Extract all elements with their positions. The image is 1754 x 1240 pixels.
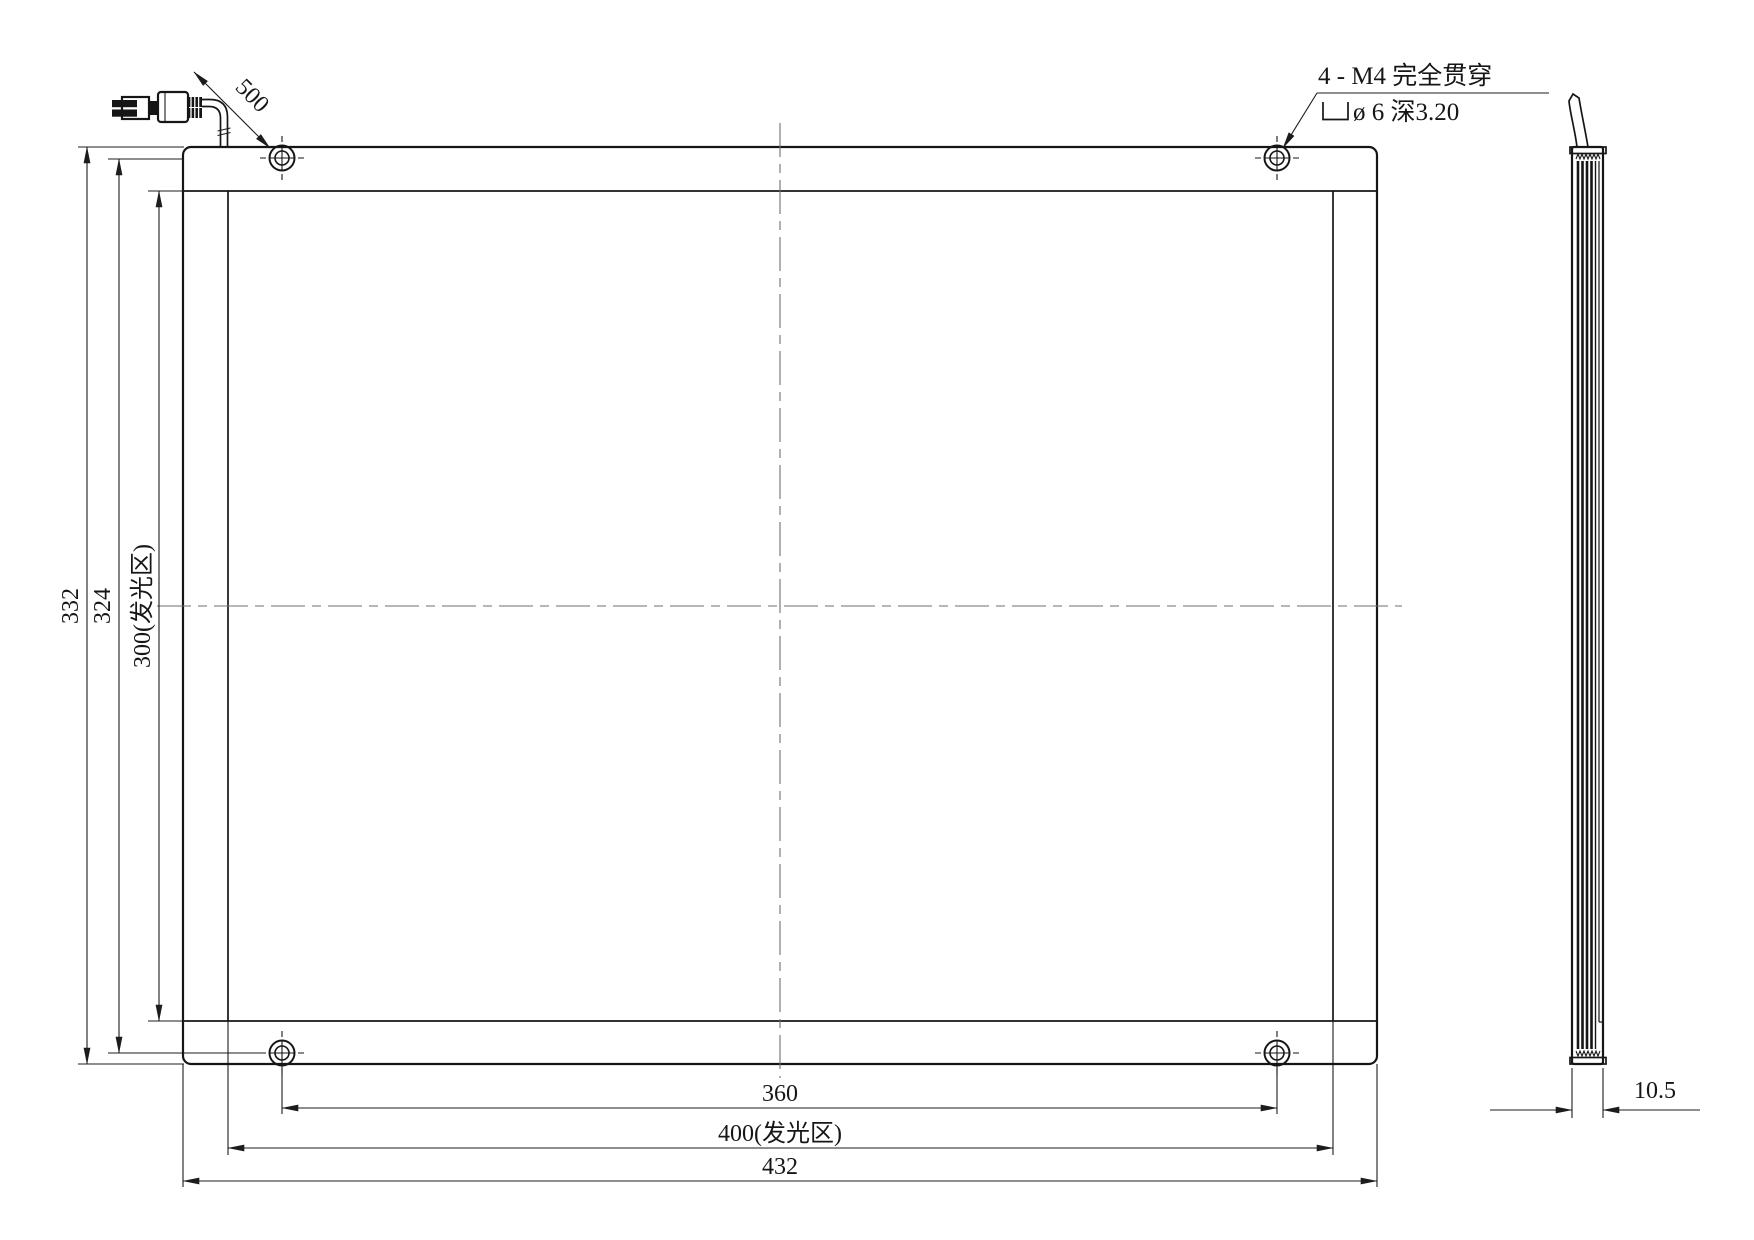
drawing-canvas: 500 332 324 300(发光区) bbox=[0, 0, 1754, 1240]
dimension-overall-width: 432 bbox=[183, 1154, 1377, 1181]
dim-mount-pitch-height-label: 324 bbox=[90, 588, 116, 624]
side-view: 10.5 bbox=[1490, 94, 1700, 1118]
connector-body bbox=[158, 92, 188, 122]
counterbore-icon bbox=[1323, 102, 1348, 120]
plug-pin bbox=[112, 110, 137, 117]
dim-overall-width-label: 432 bbox=[762, 1154, 798, 1180]
dimension-luminous-width: 400(发光区) bbox=[228, 1120, 1333, 1148]
dimension-thickness: 10.5 bbox=[1490, 1068, 1700, 1118]
drawing-sheet: 500 332 324 300(发光区) bbox=[0, 0, 1754, 1240]
dim-luminous-width-label: 400(发光区) bbox=[718, 1120, 842, 1147]
screw-hole-top-left-icon bbox=[260, 136, 304, 180]
callout-line2: ø 6 深3.20 bbox=[1353, 98, 1459, 126]
strain-relief bbox=[188, 97, 203, 118]
cable-break-mark bbox=[218, 133, 231, 136]
dim-luminous-height-label: 300(发光区) bbox=[129, 544, 156, 668]
cable-connector: 500 bbox=[112, 72, 274, 148]
side-cable bbox=[1569, 94, 1588, 147]
side-top-serration bbox=[1576, 154, 1600, 159]
dimension-mount-pitch-height: 324 bbox=[90, 159, 119, 1053]
plug-pin bbox=[112, 100, 137, 107]
side-bottom-serration bbox=[1576, 1051, 1600, 1056]
dim-mount-pitch-width-label: 360 bbox=[762, 1081, 798, 1107]
dimension-overall-height: 332 bbox=[58, 147, 87, 1064]
dim-thickness-label: 10.5 bbox=[1634, 1078, 1676, 1104]
cable-break-mark bbox=[218, 128, 231, 131]
dim-cable-length-label: 500 bbox=[230, 74, 274, 118]
callout-line1: 4 - M4 完全贯穿 bbox=[1318, 62, 1492, 90]
callout-leader bbox=[1283, 93, 1317, 148]
cable bbox=[202, 100, 231, 148]
screw-hole-top-right-icon bbox=[1255, 136, 1299, 180]
dimension-cable-length: 500 bbox=[194, 72, 274, 148]
side-internal-lines bbox=[1578, 161, 1603, 1049]
thread-callout: 4 - M4 完全贯穿 ø 6 深3.20 bbox=[1283, 62, 1549, 148]
dimension-luminous-height: 300(发光区) bbox=[129, 191, 159, 1021]
dimension-mount-pitch-width: 360 bbox=[282, 1081, 1277, 1108]
front-view bbox=[157, 123, 1402, 1078]
plug-2pin bbox=[112, 97, 149, 119]
dim-overall-height-label: 332 bbox=[58, 588, 84, 624]
